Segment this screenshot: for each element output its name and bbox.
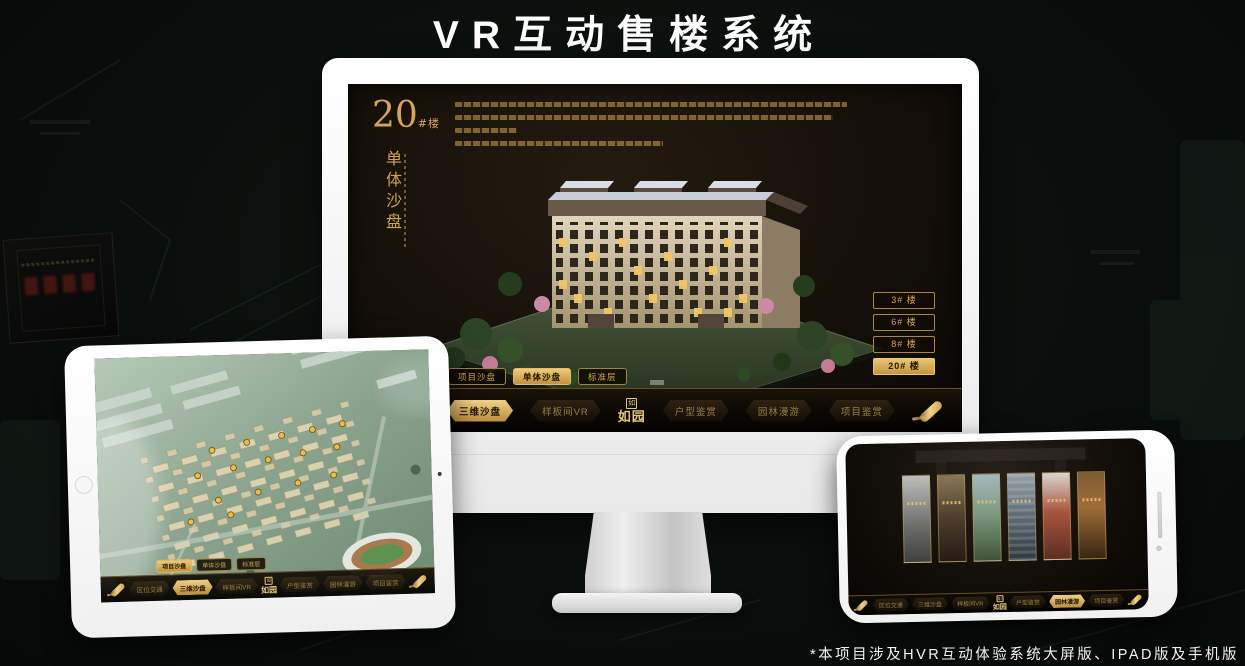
- building-button-3[interactable]: 3# 楼: [873, 292, 935, 309]
- nav-item-garden-roam[interactable]: 园林漫游: [746, 400, 812, 422]
- nav-item-3d-sandtable[interactable]: 三维沙盘: [172, 579, 212, 595]
- gallery-panel-autumn[interactable]: [1042, 472, 1072, 561]
- monitor-stand: [585, 512, 711, 598]
- gallery-panel-facade[interactable]: [1007, 472, 1037, 561]
- building-number-heading: 20#楼: [372, 98, 440, 134]
- tab-project-sandtable[interactable]: 项目沙盘: [448, 368, 506, 385]
- scroll-menu-icon-left[interactable]: [853, 598, 869, 613]
- gallery-panel-study[interactable]: [1077, 471, 1107, 560]
- nav-item-showroom-vr[interactable]: 样板间VR: [951, 596, 990, 610]
- monitor-mode-tabs: 项目沙盘 单体沙盘 标准层: [448, 368, 627, 385]
- tab-project-sandtable[interactable]: 项目沙盘: [156, 559, 192, 573]
- phone-bottom-nav: 区位交通 三维沙盘 样板间VR 如 如园 户型鉴赏 园林漫游 项目鉴赏: [848, 589, 1148, 615]
- tablet-home-button[interactable]: [75, 476, 93, 494]
- monitor-stand-base: [552, 593, 742, 613]
- nav-item-showroom-vr[interactable]: 样板间VR: [530, 400, 601, 422]
- brand-name: 如园: [618, 411, 646, 424]
- tablet-screen: 项目沙盘 单体沙盘 标准层 区位交通 三维沙盘 样板间VR 如 如园 户型鉴赏 …: [94, 349, 435, 602]
- nav-item-floorplan[interactable]: 户型鉴赏: [1010, 595, 1046, 609]
- scene-gallery: [902, 471, 1107, 563]
- scroll-menu-icon-right[interactable]: [408, 572, 428, 591]
- background-certificate-plaque: [3, 232, 120, 343]
- nav-item-project-view[interactable]: 项目鉴赏: [365, 574, 405, 590]
- nav-item-3d-sandtable[interactable]: 三维沙盘: [447, 400, 513, 422]
- nav-item-floorplan[interactable]: 户型鉴赏: [280, 576, 320, 592]
- nav-item-garden-roam[interactable]: 园林漫游: [323, 575, 363, 591]
- building-button-20[interactable]: 20# 楼: [873, 358, 935, 375]
- phone-speaker-slot: [1157, 492, 1162, 538]
- scroll-menu-icon[interactable]: [912, 396, 946, 426]
- section-subtitle-en: [404, 154, 406, 250]
- nav-item-project-view[interactable]: 项目鉴赏: [829, 400, 895, 422]
- scroll-menu-icon-right[interactable]: [1127, 592, 1143, 607]
- brand-name: 如园: [261, 585, 277, 593]
- phone-device: 区位交通 三维沙盘 样板间VR 如 如园 户型鉴赏 园林漫游 项目鉴赏: [836, 429, 1178, 623]
- building-button-8[interactable]: 8# 楼: [873, 336, 935, 353]
- section-title-vertical: 单体沙盘: [380, 150, 404, 234]
- nav-item-project-view[interactable]: 项目鉴赏: [1088, 594, 1124, 608]
- building-selector: 3# 楼 6# 楼 8# 楼 20# 楼: [873, 292, 935, 375]
- nav-item-location[interactable]: 区位交通: [130, 581, 170, 597]
- tab-single-sandtable[interactable]: 单体沙盘: [196, 558, 232, 572]
- brand-name: 如园: [993, 603, 1007, 610]
- phone-camera: [1156, 546, 1161, 551]
- gallery-panel-interior[interactable]: [937, 474, 967, 563]
- brand-seal-icon: 如: [265, 577, 273, 585]
- tablet-camera: [438, 472, 442, 476]
- nav-item-3d-sandtable[interactable]: 三维沙盘: [912, 597, 948, 611]
- tab-standard-floor[interactable]: 标准层: [236, 557, 266, 571]
- nav-item-location[interactable]: 区位交通: [873, 598, 909, 612]
- nav-item-floorplan[interactable]: 户型鉴赏: [663, 400, 729, 422]
- tab-single-sandtable[interactable]: 单体沙盘: [513, 368, 571, 385]
- scroll-menu-icon-left[interactable]: [107, 580, 127, 599]
- brand-logo: 如 如园: [618, 398, 646, 424]
- page-title: VR互动售楼系统: [0, 4, 1245, 60]
- footnote-text: *本项目涉及HVR互动体验系统大屏版、IPAD版及手机版: [810, 643, 1239, 664]
- brand-logo: 如 如园: [993, 595, 1007, 610]
- gallery-panel-courtyard[interactable]: [902, 475, 932, 564]
- nav-item-showroom-vr[interactable]: 样板间VR: [215, 578, 258, 594]
- gallery-panel-landscape[interactable]: [972, 473, 1002, 562]
- tablet-device: 项目沙盘 单体沙盘 标准层 区位交通 三维沙盘 样板间VR 如 如园 户型鉴赏 …: [64, 336, 456, 639]
- brand-seal-icon: 如: [626, 398, 637, 409]
- brand-logo: 如 如园: [261, 577, 277, 594]
- tab-standard-floor[interactable]: 标准层: [578, 368, 627, 385]
- nav-item-garden-roam[interactable]: 园林漫游: [1049, 594, 1085, 608]
- phone-screen: 区位交通 三维沙盘 样板间VR 如 如园 户型鉴赏 园林漫游 项目鉴赏: [845, 438, 1149, 615]
- building-button-6[interactable]: 6# 楼: [873, 314, 935, 331]
